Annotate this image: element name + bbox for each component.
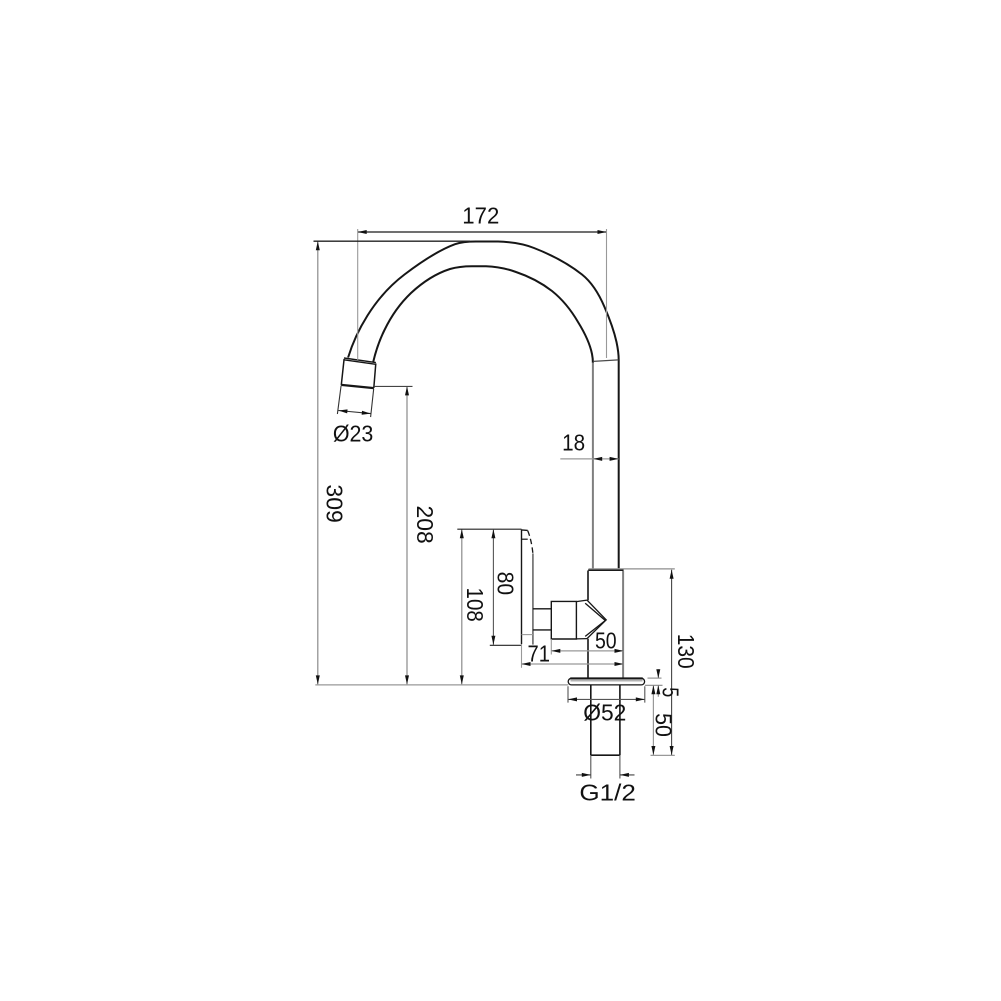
svg-text:Ø23: Ø23 <box>333 420 374 446</box>
svg-text:Ø52: Ø52 <box>583 700 626 726</box>
svg-text:172: 172 <box>462 202 499 228</box>
svg-text:71: 71 <box>528 640 551 666</box>
svg-text:50: 50 <box>651 713 677 737</box>
svg-text:108: 108 <box>462 588 488 622</box>
svg-text:208: 208 <box>412 505 438 543</box>
svg-text:309: 309 <box>321 484 347 522</box>
svg-text:130: 130 <box>673 634 699 669</box>
svg-text:18: 18 <box>562 430 585 456</box>
svg-text:G1/2: G1/2 <box>579 780 636 806</box>
svg-text:50: 50 <box>595 628 617 654</box>
svg-text:80: 80 <box>493 572 519 596</box>
svg-text:5: 5 <box>658 687 684 697</box>
